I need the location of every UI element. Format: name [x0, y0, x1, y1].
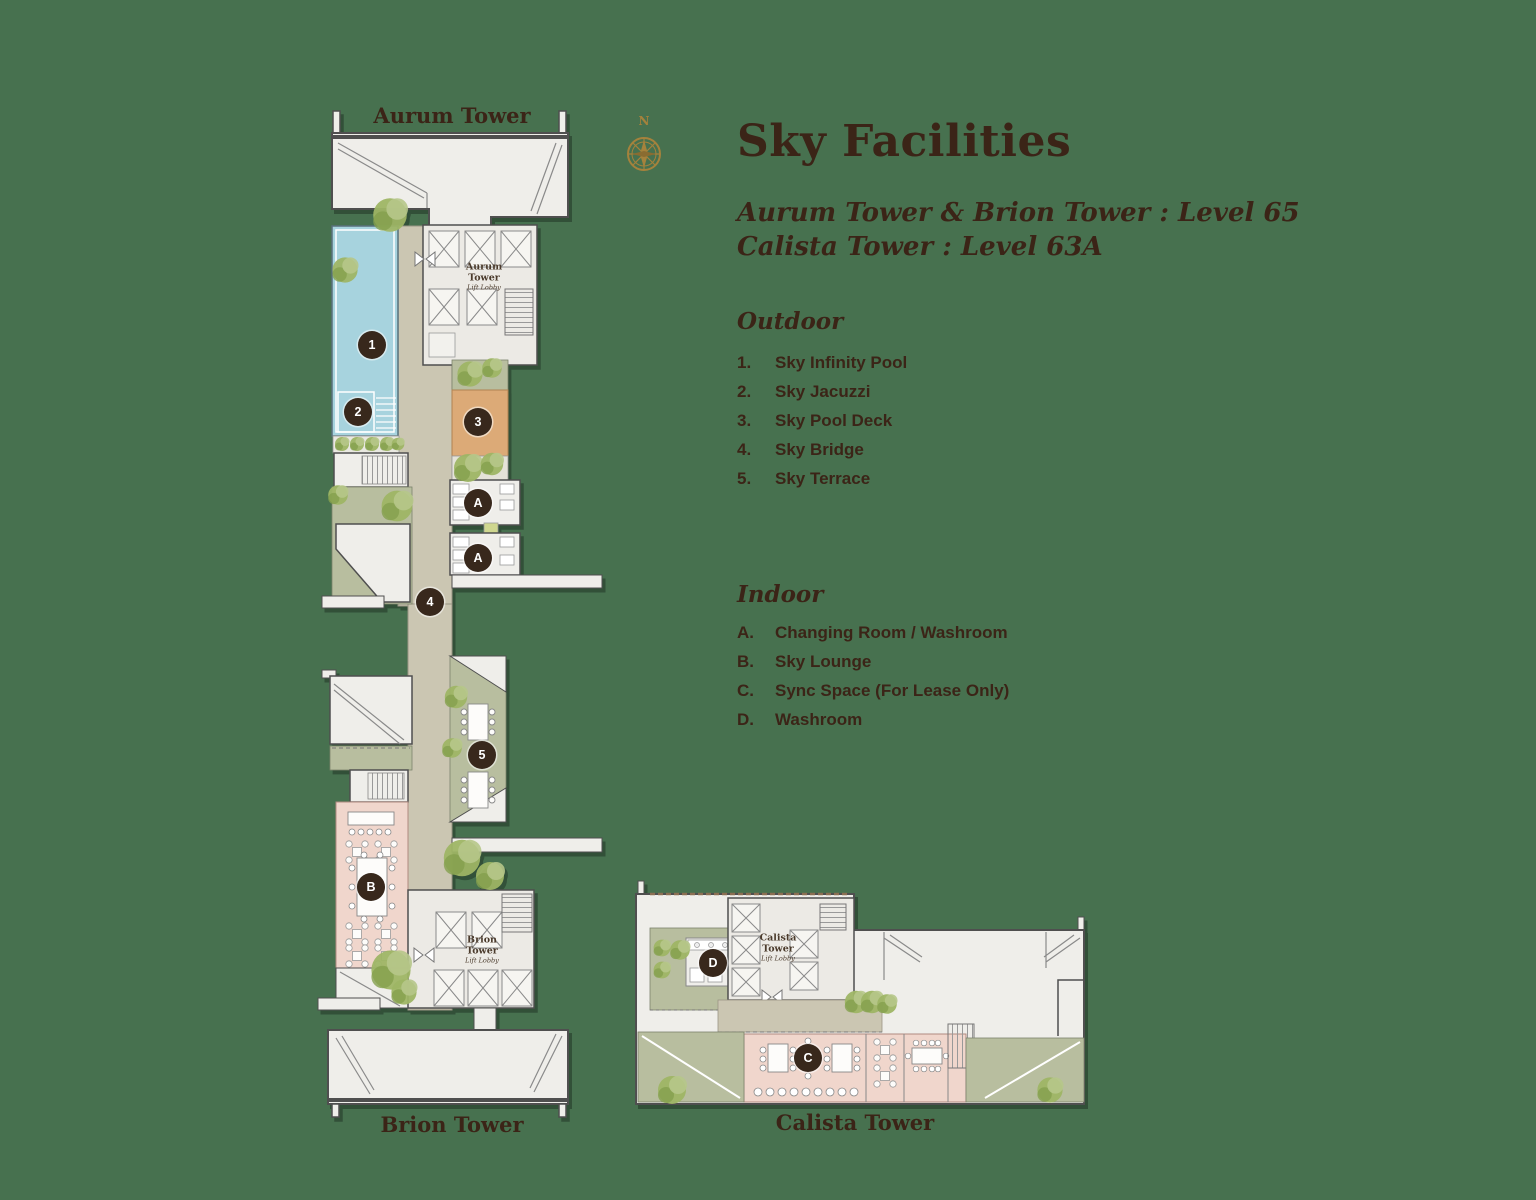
calista-plan	[636, 881, 1084, 1104]
calista-tower-label: Calista Tower	[776, 1110, 934, 1135]
compass-rose-icon	[618, 128, 670, 180]
marker-changing-room-upper: A	[464, 489, 492, 517]
legend-item-sky-lounge: B. Sky Lounge	[737, 647, 1009, 676]
legend-item-sync-space: C. Sync Space (For Lease Only)	[737, 676, 1009, 705]
sky-facilities-page: { "page": { "title": "Sky Facilities", "…	[0, 0, 1536, 1200]
indoor-legend-header: Indoor	[737, 583, 823, 606]
brion-lift-lobby-label: Brion Tower Lift Lobby	[437, 935, 527, 966]
meeting-table	[912, 1048, 942, 1064]
marker-sky-infinity-pool: 1	[358, 331, 386, 359]
outdoor-legend-list: 1. Sky Infinity Pool 2. Sky Jacuzzi 3. S…	[737, 348, 907, 493]
calista-lift-lobby-label: Calista Tower Lift Lobby	[733, 933, 823, 964]
aurum-tower-footprint	[332, 133, 568, 231]
marker-sky-terrace: 5	[468, 741, 496, 769]
brion-tower-footprint	[328, 1030, 568, 1104]
legend-item-sky-infinity-pool: 1. Sky Infinity Pool	[737, 348, 907, 377]
legend-item-sky-pool-deck: 3. Sky Pool Deck	[737, 406, 907, 435]
aurum-lift-lobby-label: Aurum Tower Lift Lobby	[439, 262, 529, 293]
marker-sky-jacuzzi: 2	[344, 398, 372, 426]
legend-item-washroom: D. Washroom	[737, 705, 1009, 734]
subtitle-line-2: Calista Tower : Level 63A	[737, 230, 1300, 264]
outdoor-legend-header: Outdoor	[737, 310, 843, 333]
aurum-stairs	[505, 289, 533, 335]
marker-washroom: D	[699, 949, 727, 977]
aurum-tower-label: Aurum Tower	[373, 103, 530, 128]
legend-item-changing-room: A. Changing Room / Washroom	[737, 618, 1009, 647]
subtitle-line-1: Aurum Tower & Brion Tower : Level 65	[737, 196, 1300, 230]
legend-item-sky-bridge: 4. Sky Bridge	[737, 435, 907, 464]
marker-sync-space: C	[794, 1044, 822, 1072]
compass-icon: N	[618, 114, 670, 185]
marker-sky-bridge: 4	[416, 588, 444, 616]
page-subtitle: Aurum Tower & Brion Tower : Level 65 Cal…	[737, 196, 1300, 264]
indoor-legend-list: A. Changing Room / Washroom B. Sky Loung…	[737, 618, 1009, 734]
calista-stairs	[820, 904, 846, 930]
marker-sky-pool-deck: 3	[464, 408, 492, 436]
marker-changing-room-lower: A	[464, 544, 492, 572]
legend-item-sky-jacuzzi: 2. Sky Jacuzzi	[737, 377, 907, 406]
marker-sky-lounge: B	[357, 873, 385, 901]
page-title: Sky Facilities	[737, 118, 1071, 166]
brion-tower-label: Brion Tower	[380, 1112, 523, 1137]
brion-stairs	[502, 894, 532, 932]
legend-item-sky-terrace: 5. Sky Terrace	[737, 464, 907, 493]
